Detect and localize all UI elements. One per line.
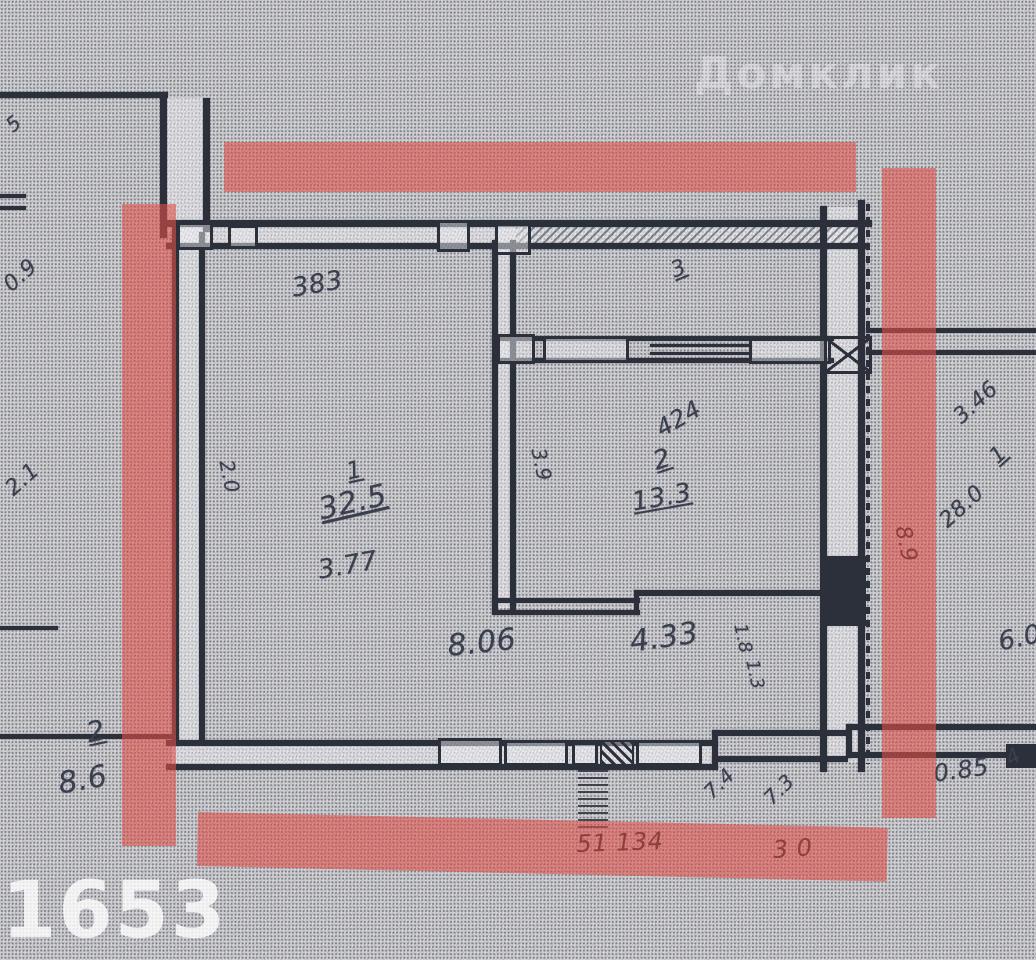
- room1-number: 1: [344, 457, 364, 484]
- window-symbol: [636, 740, 702, 766]
- room2-area: 13.3: [630, 480, 693, 516]
- wall-neighbor-top: [0, 92, 168, 98]
- dim-8-06: 8.06: [446, 625, 518, 662]
- window-symbol: [177, 222, 213, 250]
- door-sill-hatched: [600, 740, 634, 766]
- window-pane-line: [650, 352, 752, 355]
- covered-dim-51-134: 51 134: [576, 829, 664, 856]
- wall-room2-bottom: [634, 590, 824, 596]
- right-dim-3-46: 3.46: [950, 378, 1003, 428]
- window-symbol: [749, 338, 831, 364]
- dim-1-8: 1.8: [730, 622, 754, 655]
- wall-segment: [712, 756, 848, 762]
- dim-7-4: 7.4: [700, 764, 738, 802]
- window-symbol: [228, 225, 258, 249]
- wall-adjacent: [846, 724, 1036, 730]
- room3-number: 3: [668, 257, 690, 283]
- window-symbol: [437, 220, 470, 252]
- floor-plan-scan: 38332.0132.53.773.9424213.38.064.331.81.…: [0, 0, 1036, 960]
- wall-corridor: [492, 598, 640, 603]
- wall-corner: [846, 724, 852, 758]
- vent-shaft: [822, 556, 866, 626]
- wall-tick: [0, 626, 58, 630]
- dim-7-3: 7.3: [760, 770, 798, 808]
- room1-dim-3-77: 3.77: [316, 548, 379, 584]
- dim-0-85: 0.85: [932, 754, 990, 785]
- window-symbol: [495, 223, 531, 255]
- wall-cavity: [179, 232, 199, 742]
- right-room-number: 1: [986, 442, 1011, 468]
- window-symbol: [497, 334, 535, 364]
- wall-segment: [203, 98, 210, 232]
- dim-left-2-0: 2.0: [216, 458, 242, 495]
- covered-dim-8-9: 8.9: [890, 524, 919, 564]
- photo-id-watermark: 1653: [2, 872, 227, 950]
- wall-left-inner: [199, 232, 205, 742]
- wall-step: [712, 730, 718, 770]
- dim-4-33: 4.33: [628, 618, 700, 657]
- wall-corridor: [492, 610, 640, 615]
- wall-cavity: [827, 207, 858, 762]
- edge-dim-5: 5: [2, 111, 25, 135]
- wall-tick: [0, 206, 26, 210]
- red-highlight-left: [122, 204, 176, 846]
- window-symbol: [504, 740, 568, 766]
- wall-break-line: [866, 204, 870, 764]
- shaft-x-symbol: [824, 336, 872, 374]
- wall-segment: [712, 730, 848, 736]
- neighbor-room-area: 8.6: [56, 761, 110, 799]
- room1-area: 32.5: [316, 481, 390, 526]
- wall-connector: [634, 590, 639, 615]
- dim-3-9: 3.9: [528, 446, 554, 483]
- wall-cavity: [498, 246, 510, 608]
- covered-dim-3-0: 3 0: [772, 835, 813, 862]
- dim-6-0: 6.0: [996, 621, 1036, 655]
- neighbor-room-number: 2: [84, 716, 108, 747]
- wall-partition: [510, 240, 516, 612]
- site-watermark: Домклик: [694, 52, 943, 96]
- wall-tick: [0, 194, 26, 198]
- window-pane-line: [650, 344, 752, 347]
- room2-dim-424: 424: [652, 396, 705, 440]
- right-room-area: 28.0: [936, 482, 989, 532]
- window-symbol: [543, 336, 629, 363]
- dim-383: 383: [290, 267, 345, 301]
- window-symbol: [572, 742, 598, 766]
- room2-number: 2: [650, 445, 674, 475]
- red-highlight-right: [882, 168, 936, 818]
- red-highlight-top: [224, 142, 856, 192]
- wall-hatch: [516, 227, 864, 243]
- edge-dim-0-9: 0.9: [0, 256, 42, 297]
- wall-right-outer: [858, 200, 865, 772]
- edge-dim-2-1: 2.1: [2, 460, 44, 501]
- wall-right-inner: [820, 206, 827, 772]
- wall-partition: [492, 240, 498, 612]
- dim-1-3: 1.3: [742, 658, 766, 691]
- window-symbol: [438, 738, 502, 766]
